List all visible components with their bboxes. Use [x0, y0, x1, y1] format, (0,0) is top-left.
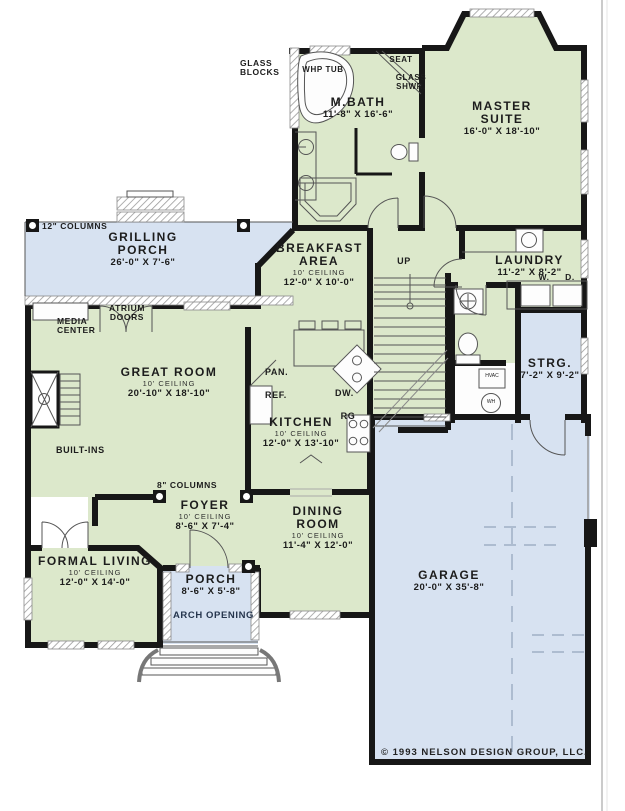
grill-icon	[117, 197, 184, 210]
foyer-label: FOYER 10' CEILING 8'-6" X 7'-4"	[151, 499, 259, 532]
master-suite-label: MASTER SUITE 16'-0" X 18'-10"	[442, 100, 562, 137]
wh-note: WH	[482, 400, 500, 406]
washer-note: W.	[536, 273, 552, 282]
seat-note: SEAT	[381, 56, 421, 65]
copyright: © 1993 NELSON DESIGN GROUP, LLC.	[381, 747, 596, 758]
hvac-note: HVAC	[479, 374, 505, 380]
storage-label: STRG. 7'-2" X 9'-2"	[506, 357, 594, 381]
breakfast-label: BREAKFAST AREA 10' CEILING 12'-0" X 10'-…	[264, 242, 374, 288]
pantry-note: PAN.	[265, 368, 297, 378]
media-center-note: MEDIA CENTER	[57, 317, 109, 336]
up-note: UP	[393, 257, 415, 267]
grilling-porch-label: GRILLING PORCH 26'-0" X 7'-6"	[78, 231, 208, 268]
washer-icon	[521, 285, 550, 306]
columns-8-note: 8" COLUMNS	[157, 481, 232, 490]
floor-plan: GRILLING PORCH 26'-0" X 7'-6" MASTER SUI…	[0, 0, 625, 811]
formal-living-label: FORMAL LIVING 10' CEILING 12'-0" X 14'-0…	[25, 555, 165, 588]
page-border	[602, 0, 607, 811]
columns-12-note: 12" COLUMNS	[42, 222, 127, 231]
whp-tub-note: WHP TUB	[301, 66, 345, 75]
glass-shwr-note: GLASS SHWR.	[386, 74, 436, 92]
front-steps	[139, 642, 279, 682]
porch-label: PORCH 8'-6" X 5'-8"	[166, 573, 256, 597]
refrigerator-note: REF.	[265, 391, 297, 401]
great-room-label: GREAT ROOM 10' CEILING 20'-10" X 18'-10"	[90, 366, 248, 399]
dryer-icon	[553, 285, 582, 306]
arch-opening-note: ARCH OPENING	[167, 611, 260, 621]
toilet-icon	[459, 333, 478, 355]
double-doors-icon	[42, 522, 88, 548]
glass-blocks-note: GLASS BLOCKS	[240, 59, 294, 78]
dining-room-label: DINING ROOM 10' CEILING 11'-4" X 12'-0"	[262, 505, 374, 551]
garage-label: GARAGE 20'-0" X 35'-8"	[385, 569, 513, 593]
toilet-icon	[391, 145, 407, 160]
dryer-note: D.	[562, 273, 578, 282]
dishwasher-note: DW.	[335, 389, 365, 399]
range-note: RG	[336, 412, 360, 422]
built-ins-note: BUILT-INS	[56, 446, 126, 456]
m-bath-label: M.BATH 11'-8" X 16'-6"	[300, 96, 416, 120]
